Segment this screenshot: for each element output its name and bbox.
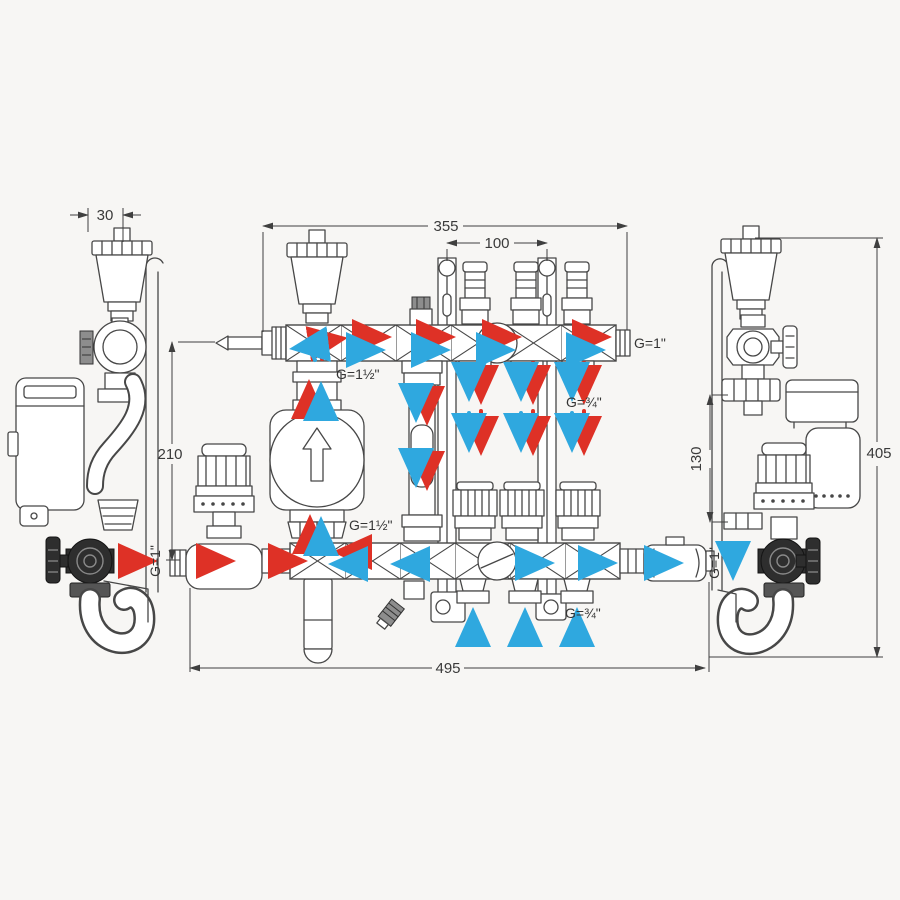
dim-210-label: 210 [157,446,182,463]
supply-loop-outlet [562,361,594,385]
dim-30-label: 30 [97,207,114,224]
return-valve-cap [453,482,497,540]
return-loop-outlet [457,579,489,603]
supply-loop-outlet [511,361,543,385]
supply-valve-insert [562,262,592,324]
return-loop-outlet [509,579,541,603]
return-valve-cap [500,482,544,540]
supply-valve-insert [460,262,490,324]
dim-495-label: 495 [435,660,460,677]
sensor-well-tube [304,579,332,663]
thermostatic-head [754,443,814,509]
dim-355-label: 355 [433,218,458,235]
valve-handwheel [46,537,60,583]
return-inlet-port-label: G=1" [147,545,163,577]
pump-union-port-label: G=1½" [349,517,393,533]
supply-main-port-label: G=1½" [336,366,380,382]
supply-end-port-label: G=1" [634,335,666,351]
dim-405-label: 405 [866,445,891,462]
supply-manifold-bar [286,325,616,361]
supply-loop-port-label: G=¾" [566,394,602,410]
return-loop-outlet [561,579,593,603]
pump-motor-side [8,378,84,526]
supply-valve-insert [511,262,541,324]
return-outlet-port-label: G=1" [706,547,722,579]
shutoff-ball-valve-dark [46,537,114,583]
dim-100-label: 100 [484,235,509,252]
manifold-technical-drawing: 30 355 100 405 210 130 495 G=1½" G=1" G=… [0,0,900,900]
return-manifold-bar [290,543,620,579]
fill-drain-valve [410,297,432,325]
dim-130-label: 130 [688,446,705,471]
return-loop-port-label: G=¾" [565,605,601,621]
return-valve-cap [556,482,600,540]
supply-loop-outlet [459,361,491,385]
valve-stem [771,341,783,353]
shutoff-ball-valve-dark [758,538,820,584]
